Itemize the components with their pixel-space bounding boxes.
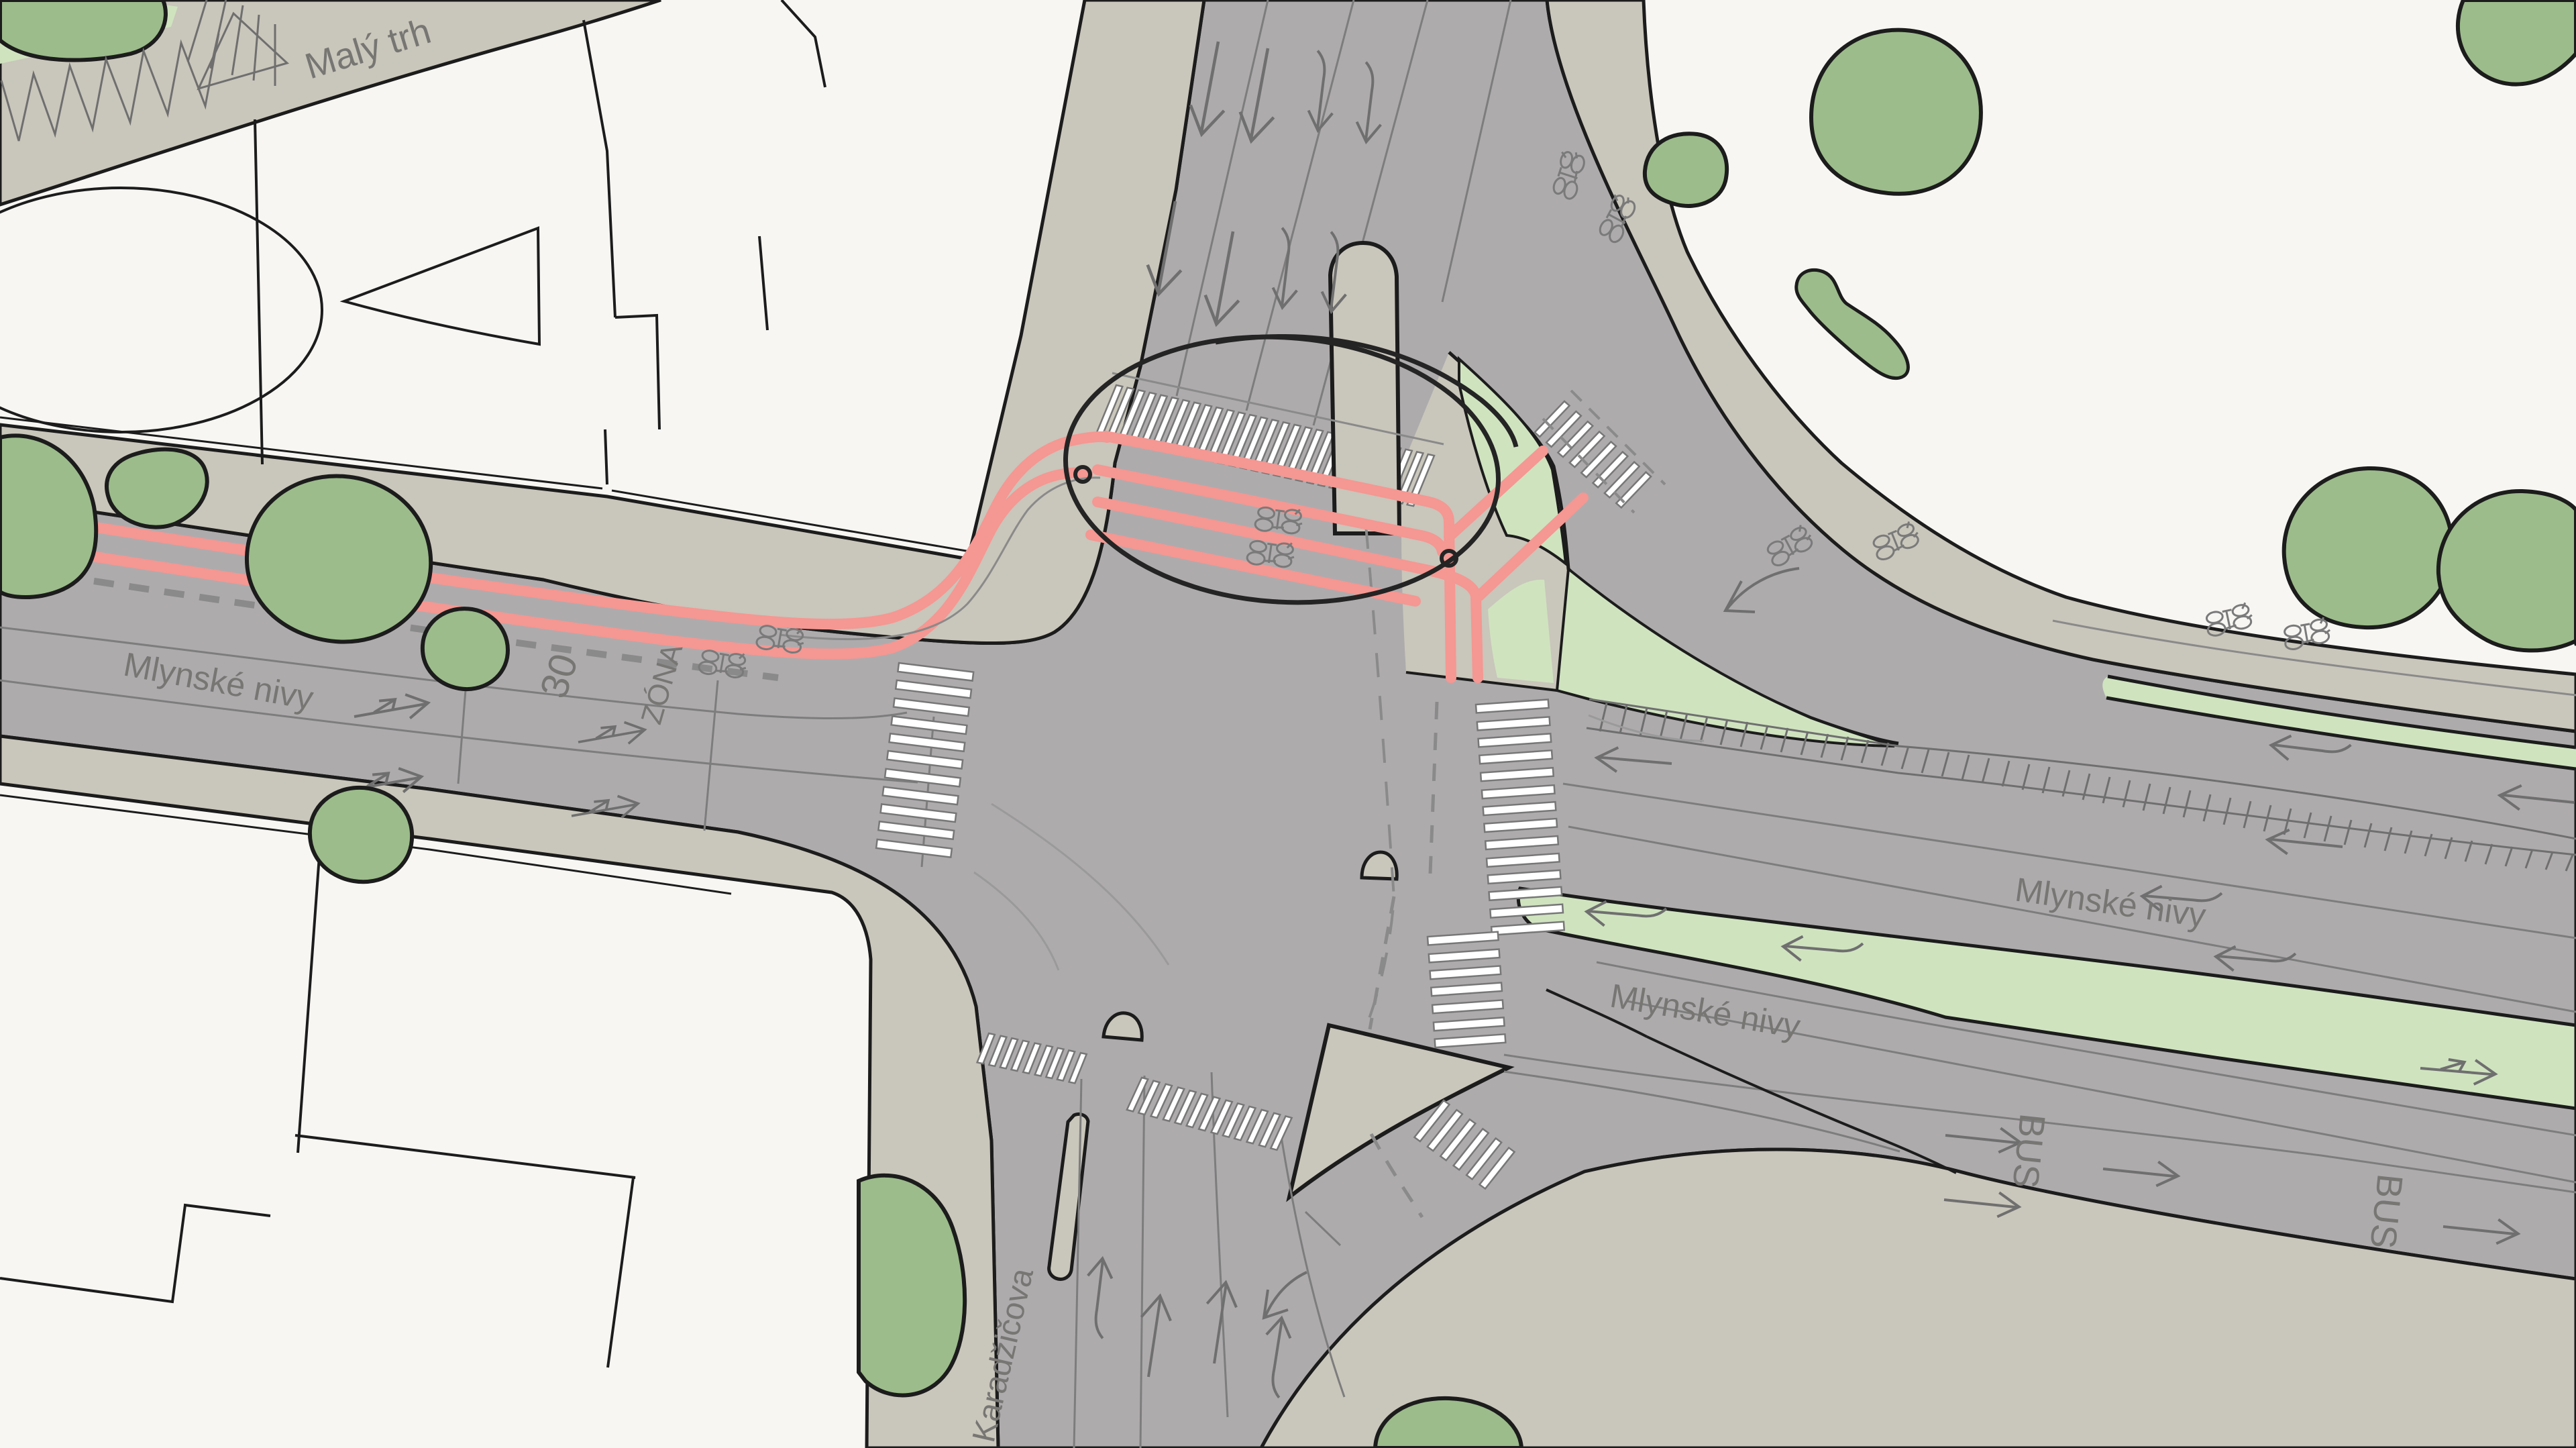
svg-text:BUS: BUS [2004, 1112, 2052, 1190]
svg-text:BUS: BUS [2362, 1172, 2410, 1251]
